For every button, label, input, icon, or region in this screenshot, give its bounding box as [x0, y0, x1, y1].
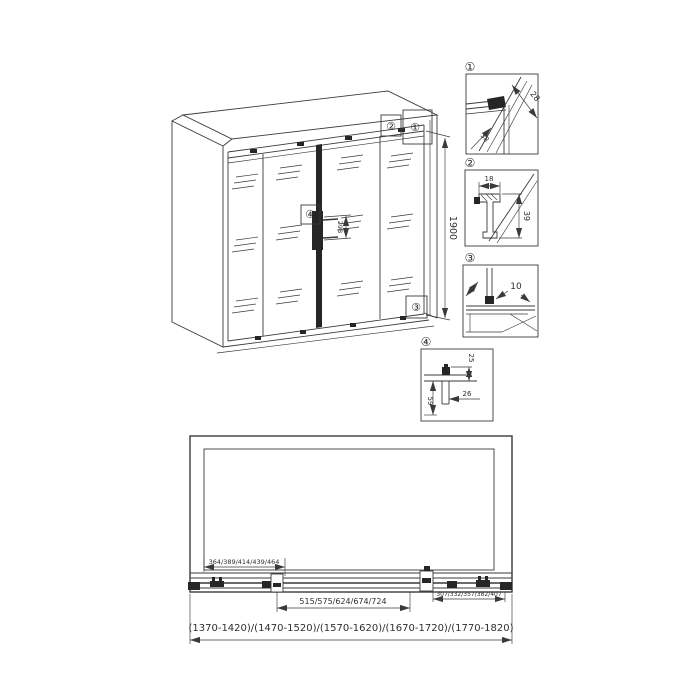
detail-4-dim-26: 26: [463, 390, 472, 398]
dimension-center-doors: 515/575/624/674/724: [277, 592, 410, 612]
shower-door-technical-drawing: 298 1900 ② ① ③ ④ ①: [0, 0, 700, 700]
detail-view-4: ④ 25 26 59: [421, 335, 493, 421]
elevation-view: 364/389/414/439/464 515/575/624/674/724 …: [188, 436, 514, 644]
callout-2-marker: ②: [381, 115, 401, 136]
glass-door-assembly: [217, 125, 434, 353]
end-cap-left: [188, 582, 200, 590]
detail-view-2: ② 18 39: [465, 156, 538, 246]
elevation-bottom-track: [190, 573, 512, 588]
dim-right-panel-text: 307/332/357/382/407: [436, 591, 502, 598]
detail-1-dim-28: 28: [528, 90, 541, 104]
detail-view-1: ① 28 38: [465, 60, 542, 154]
end-cap-right: [500, 582, 512, 590]
detail-1-label: ①: [465, 60, 476, 74]
detail-3-seal: [485, 296, 494, 304]
detail-2-profile: [479, 194, 500, 238]
dimension-right-panel: 307/332/357/382/407: [433, 591, 505, 602]
main-isometric-view: 298 1900 ② ① ③ ④: [172, 91, 458, 353]
dim-handle-298: 298: [336, 221, 344, 233]
technical-drawing-canvas: 298 1900 ② ① ③ ④ ①: [0, 0, 700, 700]
roller-bracket-right: [476, 580, 490, 587]
detail-2-frame: [465, 170, 538, 246]
detail-4-label: ④: [421, 335, 432, 349]
detail-2-dim-39: 39: [522, 211, 531, 221]
detail-4-frame: [421, 349, 493, 421]
slide-direction-arrow: [466, 282, 478, 296]
detail-3-dim-10: 10: [510, 282, 522, 292]
left-wall: [172, 121, 223, 347]
dimension-height: 1900: [426, 131, 458, 320]
dim-center-doors-text: 515/575/624/674/724: [299, 597, 386, 606]
dim-height-1900: 1900: [447, 216, 458, 240]
detail-4-dim-59: 59: [426, 397, 434, 406]
detail-view-3: ③ 10: [463, 251, 538, 337]
callout-2-label: ②: [386, 120, 396, 133]
callout-1-label: ①: [410, 121, 420, 134]
detail-2-label: ②: [465, 156, 476, 170]
callout-4-label: ④: [305, 208, 315, 221]
elevation-outer-frame: [190, 436, 512, 592]
detail-4-dim-25: 25: [467, 354, 475, 363]
roller-bracket-left: [210, 581, 224, 587]
detail-2-dim-18: 18: [485, 175, 494, 183]
callout-3-label: ③: [411, 301, 421, 314]
detail-3-label: ③: [465, 251, 476, 265]
roller-right: [447, 581, 457, 588]
detail-4-knob: [442, 367, 450, 375]
dim-overall-text: (1370-1420)/(1470-1520)/(1570-1620)/(167…: [188, 623, 513, 634]
roller-left: [262, 581, 272, 588]
dim-left-panel-text: 364/389/414/439/464: [209, 558, 280, 566]
detail-3-frame: [463, 265, 538, 337]
elevation-glass: [204, 449, 494, 570]
